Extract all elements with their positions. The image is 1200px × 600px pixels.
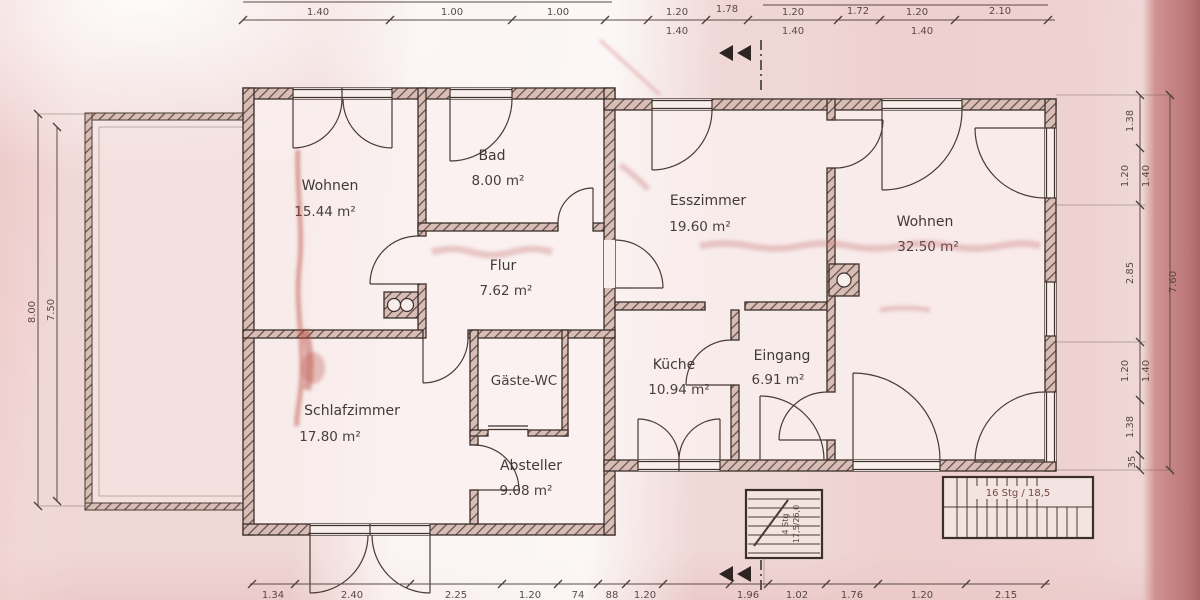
- dim-label: 7.60: [1168, 271, 1179, 293]
- dim-label: 1.96: [737, 590, 759, 600]
- dim-label: 1.20: [782, 7, 804, 18]
- dim-label: 74: [572, 590, 585, 600]
- dim-label: 1.38: [1125, 416, 1136, 438]
- staircase-entry: 4 Stg 17,5/26,0: [746, 490, 822, 586]
- dim-label: 1.02: [786, 590, 808, 600]
- dim-label: 1.40: [782, 26, 804, 37]
- dim-label: 1.00: [441, 7, 463, 18]
- dim-label: 1.40: [1141, 165, 1152, 187]
- dim-label: 1.40: [911, 26, 933, 37]
- section-arrow-icon: [719, 45, 733, 61]
- room-area: 15.44 m²: [294, 204, 356, 220]
- staircase-entry-label-2: 17,5/26,0: [792, 505, 801, 543]
- dim-label: 7.50: [46, 299, 57, 321]
- dimension-chain-top: 1.40 1.00 1.00 1.20 1.78 1.20 1.72 1.20 …: [239, 2, 1055, 37]
- dimension-chain-bottom: 1.34 2.40 2.25 1.20 74 88 1.20 1.96 1.02…: [248, 580, 1050, 600]
- room-area: 10.94 m²: [648, 382, 710, 398]
- room-area: 9.08 m²: [500, 483, 553, 499]
- staircase-main-label: 16 Stg / 18,5: [986, 488, 1051, 499]
- dim-label: 1.76: [841, 590, 863, 600]
- room-name: Esszimmer: [670, 193, 747, 209]
- room-name: Bad: [478, 148, 505, 164]
- dim-label: 1.38: [1125, 110, 1136, 132]
- dim-label: 1.20: [634, 590, 656, 600]
- room-area: 19.60 m²: [669, 219, 731, 235]
- dim-label: 1.20: [666, 7, 688, 18]
- dimension-chain-right: 1.38 1.20 1.40 2.85 1.20 1.40 1.38 35 7.…: [1056, 91, 1179, 474]
- dim-label: 2.10: [989, 6, 1011, 17]
- dim-label: 1.34: [262, 590, 284, 600]
- dim-label: 2.25: [445, 590, 467, 600]
- dim-label: 1.20: [1120, 165, 1131, 187]
- section-arrow-icon: [737, 45, 751, 61]
- dim-label: 88: [606, 590, 619, 600]
- dim-label: 2.15: [995, 590, 1017, 600]
- section-arrow-icon: [719, 566, 733, 582]
- room-name: Wohnen: [897, 214, 954, 230]
- room-name: Wohnen: [302, 178, 359, 194]
- room-area: 8.00 m²: [472, 173, 525, 189]
- dim-label: 35: [1127, 456, 1138, 469]
- room-area: 6.91 m²: [752, 372, 805, 388]
- room-name: Küche: [653, 357, 696, 373]
- dim-label: 1.20: [519, 590, 541, 600]
- room-name: Eingang: [754, 348, 811, 364]
- room-name: Schlafzimmer: [304, 403, 400, 419]
- dim-label: 1.20: [906, 7, 928, 18]
- dim-label: 1.40: [1141, 360, 1152, 382]
- dimension-chain-left: 8.00 7.50: [27, 110, 90, 510]
- staircase-entry-label-1: 4 Stg: [781, 514, 790, 535]
- dim-label: 1.78: [716, 4, 738, 15]
- dim-label: 1.20: [911, 590, 933, 600]
- dim-label: 1.00: [547, 7, 569, 18]
- room-area: 17.80 m²: [299, 429, 361, 445]
- room-area: 7.62 m²: [480, 283, 533, 299]
- section-arrow-icon: [737, 566, 751, 582]
- floor-plan-drawing: 16 Stg / 18,5 4 Stg 17,5/26,0 1.40 1.00 …: [0, 0, 1200, 600]
- dim-label: 2.85: [1125, 262, 1136, 284]
- dim-label: 8.00: [27, 301, 38, 323]
- room-name: Gäste-WC: [491, 373, 557, 389]
- dim-label: 1.40: [307, 7, 329, 18]
- dim-label: 2.40: [341, 590, 363, 600]
- staircase-main: 16 Stg / 18,5: [943, 477, 1093, 538]
- room-name: Absteller: [500, 458, 562, 474]
- floorplan-photo: 16 Stg / 18,5 4 Stg 17,5/26,0 1.40 1.00 …: [0, 0, 1200, 600]
- dim-label: 1.72: [847, 6, 869, 17]
- room-name: Flur: [490, 258, 517, 274]
- dim-label: 1.40: [666, 26, 688, 37]
- dim-label: 1.20: [1120, 360, 1131, 382]
